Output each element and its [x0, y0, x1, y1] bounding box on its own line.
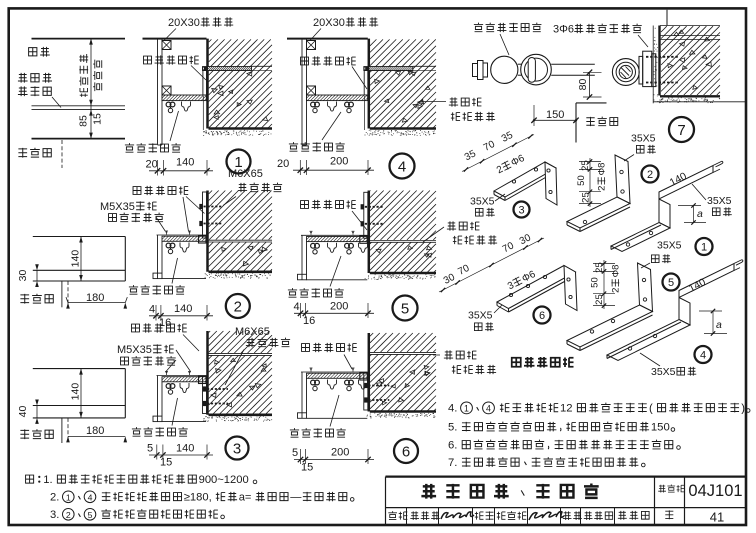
svg-text:5: 5 [668, 277, 674, 289]
svg-text:4: 4 [398, 158, 406, 175]
svg-text:140: 140 [176, 157, 194, 169]
svg-text:50: 50 [576, 175, 587, 186]
svg-text:20X30: 20X30 [313, 17, 345, 29]
svg-text:04J101: 04J101 [688, 482, 742, 500]
svg-text:M6X65: M6X65 [235, 326, 270, 338]
svg-text:20: 20 [146, 159, 158, 171]
svg-text:Φ8: Φ8 [597, 163, 608, 176]
svg-text:7.: 7. [448, 457, 457, 469]
svg-text:5: 5 [88, 510, 93, 520]
svg-text:2: 2 [597, 186, 608, 191]
svg-text:3: 3 [233, 440, 241, 457]
svg-text:(: ( [649, 403, 653, 415]
svg-text:200: 200 [330, 301, 348, 313]
svg-text:25: 25 [594, 294, 605, 305]
svg-text:15: 15 [92, 113, 104, 125]
svg-text:25: 25 [594, 262, 605, 273]
svg-text:a: a [697, 208, 703, 220]
svg-text:35X5: 35X5 [631, 133, 656, 145]
svg-text:4: 4 [486, 404, 491, 414]
svg-text:2: 2 [611, 288, 622, 293]
svg-text:20X30: 20X30 [168, 17, 200, 29]
svg-text:150: 150 [651, 422, 670, 434]
svg-text:30: 30 [17, 269, 29, 281]
svg-text:4: 4 [88, 493, 93, 503]
svg-text:180: 180 [86, 292, 104, 304]
svg-text:85: 85 [78, 115, 90, 127]
svg-text:16: 16 [159, 317, 171, 329]
svg-text:5: 5 [401, 300, 409, 317]
svg-text:≥180,: ≥180, [184, 492, 212, 504]
svg-text:140: 140 [176, 443, 194, 455]
svg-text:4: 4 [700, 350, 706, 362]
svg-text:6: 6 [539, 310, 545, 322]
svg-text:6: 6 [402, 443, 410, 460]
svg-text:5.: 5. [448, 422, 457, 434]
svg-text:4: 4 [294, 301, 300, 313]
svg-text:3.: 3. [50, 509, 59, 521]
svg-text:2.: 2. [50, 492, 59, 504]
svg-text:1.: 1. [43, 474, 52, 486]
svg-text:2: 2 [647, 169, 653, 181]
svg-text:Φ8: Φ8 [611, 265, 622, 278]
svg-text:25: 25 [580, 160, 591, 171]
svg-text:M5X35: M5X35 [117, 344, 152, 356]
svg-text:5: 5 [292, 447, 298, 459]
svg-text:80: 80 [577, 78, 589, 90]
svg-text:1: 1 [66, 493, 71, 503]
svg-text:20: 20 [277, 158, 289, 170]
svg-text:200: 200 [330, 156, 348, 168]
svg-text:2: 2 [66, 510, 71, 520]
svg-text:50: 50 [590, 277, 601, 288]
svg-text:4.: 4. [448, 403, 457, 415]
svg-text:—: — [290, 492, 302, 504]
svg-text:7: 7 [677, 122, 685, 139]
svg-text:3Φ6: 3Φ6 [553, 24, 574, 36]
svg-text:40: 40 [17, 405, 29, 417]
svg-text:900~1200: 900~1200 [199, 474, 249, 486]
svg-text:25: 25 [581, 192, 592, 203]
svg-text:150: 150 [546, 109, 564, 121]
svg-text:6.: 6. [448, 440, 457, 452]
svg-text:35X5: 35X5 [468, 310, 493, 322]
svg-text:2: 2 [234, 298, 242, 315]
svg-text:1: 1 [701, 242, 707, 254]
svg-text:35X5: 35X5 [651, 366, 676, 378]
svg-text:M6X65: M6X65 [228, 168, 263, 180]
svg-text:a=: a= [239, 492, 252, 504]
svg-text:5: 5 [147, 443, 153, 455]
svg-text:1: 1 [464, 404, 469, 414]
svg-text:35X5: 35X5 [657, 240, 682, 252]
svg-text:140: 140 [70, 250, 82, 268]
svg-text:12: 12 [560, 403, 573, 415]
svg-text:16: 16 [303, 315, 315, 327]
svg-text:15: 15 [160, 457, 172, 469]
svg-text:a: a [716, 319, 722, 331]
svg-text:): ) [741, 403, 745, 415]
svg-text:140: 140 [70, 383, 82, 401]
svg-text:180: 180 [86, 425, 104, 437]
svg-text:M5X35: M5X35 [100, 201, 135, 213]
svg-text:140: 140 [174, 303, 192, 315]
svg-text:200: 200 [331, 447, 349, 459]
svg-text:35X5: 35X5 [470, 196, 495, 208]
svg-text:41: 41 [710, 510, 724, 525]
svg-text:4: 4 [149, 304, 155, 316]
svg-text:3: 3 [518, 205, 524, 217]
svg-text:15: 15 [301, 462, 313, 474]
svg-text:35X5: 35X5 [707, 195, 732, 207]
